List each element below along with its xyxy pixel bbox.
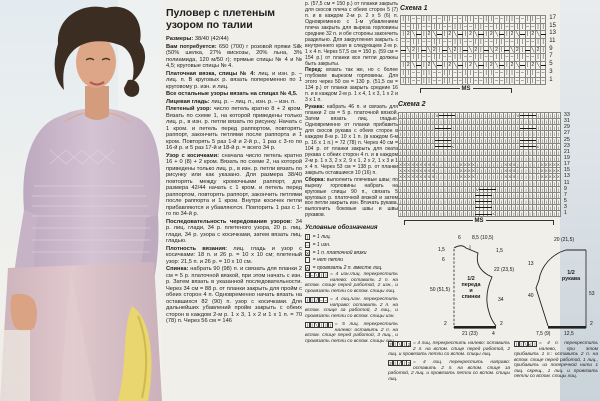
measurement-label: 2 [500, 322, 503, 327]
chart2-title: Схема 2 [398, 101, 426, 108]
paragraph-needles-note: Все остальные узоры вязать на спицах № 4… [166, 91, 302, 98]
cable-increase-symbol-icon: ||╲≤| [514, 341, 537, 347]
measurement-label: 22 (23,5) [494, 268, 514, 273]
measurement-label: 8,5 (10,5) [472, 236, 493, 241]
ms-repeat-label: MS [462, 86, 471, 92]
legend-item-knit: |= 1 лиц. [305, 234, 398, 240]
legend-title: Условные обозначения [305, 224, 398, 231]
garter-symbol-icon: X [305, 250, 310, 256]
schematic-sleeve: 20 (21,5) 13 40 53 2 7,5 (9) 12,5 1/2 ру… [528, 236, 598, 338]
no-stitch-symbol-icon [305, 257, 310, 263]
measurement-label: 1,5 [438, 248, 445, 253]
paragraph-garter: Платочная вязка, спицы № 4: лиц. и изн. … [166, 71, 302, 91]
bottom-legend-right: ||╲≤|= 4 п. перекрестить налево, при это… [514, 341, 598, 382]
chart1-repeat-bracket: MS [420, 88, 512, 93]
paragraph-cable-pattern: Узор с косичками: сначала число петель к… [166, 153, 302, 218]
measurement-label: 1,5 [496, 249, 503, 254]
cable4-right-symbol-icon: 2|╱|2 [388, 360, 411, 366]
page-title: Пуловер с плетеным узором по талии [166, 8, 302, 31]
bottom-legend-left: 2|╲|2= 4 лиц. перекрестить налево: остав… [388, 341, 510, 385]
paragraph-assembly: Сборка: выполнить плечевые швы; по вырез… [305, 178, 398, 220]
measurement-label: 2 [590, 322, 593, 327]
paragraph-back: Спинка: набрать 90 (98) п. и связать для… [166, 266, 302, 325]
knit-symbol-icon: | [305, 234, 310, 240]
legend-item-cable4-right: 2|╱|2= 4 лиц. перекрестить направо: оста… [388, 360, 510, 382]
legend-item-k2tog: Λ= провязать 2 п. вместе лиц. [305, 265, 398, 271]
legend-item-cable-inc: ||╲≤|= 4 п. перекрестить налево, при это… [514, 341, 598, 380]
paragraph-sequence: Последовательность чередования узоров: 3… [166, 219, 302, 245]
paragraph-gauge: Плотность вязания: лиц. гладь и узор с к… [166, 246, 302, 266]
pattern-text-column-2: р. (57,5 см = 150 р.) от планки закрыть … [305, 2, 398, 347]
measurement-label: 20 (21,5) [554, 238, 574, 243]
chart2-grid: |||||||||V|||||||||||||||V||||||||||||||… [398, 112, 561, 217]
cable5-left-symbol-icon: ||╲||| [305, 322, 333, 328]
measurement-label: 7,5 (9) [536, 332, 550, 337]
measurement-label: 13 [528, 262, 534, 267]
legend-item-purl: –= 1 изн. [305, 242, 398, 248]
measurement-label: 21 (23) [462, 332, 478, 337]
cable4-left-symbol-icon: 2|╲|2 [388, 341, 411, 347]
piece-name: 1/2 переда и спинки [458, 276, 484, 300]
measurement-label: 6 [458, 236, 461, 241]
legend-item-garter: X= 1 п. платочной вязки [305, 250, 398, 256]
legend-item-nostitch: = нет петли [305, 257, 398, 263]
symbol-legend: Условные обозначения |= 1 лиц. –= 1 изн.… [305, 224, 398, 344]
legend-item-cable-right-purl: ||╱––= 4 лиц./изн. перекрестить направо:… [305, 297, 398, 319]
chart1-row-numbers: 1715131197531 [549, 15, 556, 84]
measurement-label: 6 [442, 258, 445, 263]
legend-item-cable4-left: 2|╲|2= 4 лиц. перекрестить налево: остав… [388, 341, 510, 358]
measurement-label: 50 (51,5) [430, 288, 450, 293]
chart1-title: Схема 1 [400, 5, 428, 12]
measurement-label: 34 [498, 298, 504, 303]
paragraph-back-cont: р. (57,5 см = 150 р.) от планки закрыть … [305, 2, 398, 67]
k2tog-symbol-icon: Λ [305, 265, 310, 271]
paragraph-front: Перед: вязать так же, но с более глубоки… [305, 68, 398, 104]
measurement-label: 40 [528, 294, 534, 299]
model-photo [0, 0, 162, 401]
measurement-label: 53 [589, 292, 595, 297]
measurement-label: 12,5 [564, 332, 574, 337]
measurement-label: 2 [444, 322, 447, 327]
chart2-row-numbers: 33312927252321191715131197531 [564, 112, 570, 216]
pattern-text-column-1: Пуловер с плетеным узором по талии Разме… [166, 8, 302, 326]
cable-left-symbol-icon: ––╲|| [305, 272, 328, 278]
ms-repeat-label: MS [475, 218, 484, 224]
paragraph-stockinette: Лицевая гладь: лиц. р. – лиц. п., изн. р… [166, 99, 302, 106]
schematic-front-back: 6 8,5 (10,5) 1,5 6 50 (51,5) 2 1,5 22 (2… [430, 236, 526, 338]
paragraph-sizes: Размеры: 38/40 (42/44) [166, 36, 302, 43]
paragraph-sleeves: Рукава: набрать 46 п. и связать для план… [305, 105, 398, 176]
chart-schema-1: ||––||––||––||––||––||––||––––||––||––||… [400, 15, 556, 85]
legend-item-cable5-left: ||╲|||= 5 лиц. перекрестить налево: оста… [305, 322, 398, 344]
purl-symbol-icon: – [305, 242, 310, 248]
paragraph-woven-pattern: Плетеный узор: число петель кратно 8 + 2… [166, 106, 302, 152]
legend-item-cable-left-purl: ––╲||= 4 изн./лиц. перекрестить налево: … [305, 272, 398, 294]
paragraph-materials: Вам потребуется: 650 (700) г розовой пря… [166, 44, 302, 70]
chart1-grid: ||––||––||––||––||––||––||––––||––||––||… [400, 15, 546, 85]
chart-schema-2: |||||||||V|||||||||||||||V||||||||||||||… [398, 112, 570, 217]
chart2-repeat-bracket: MS [404, 220, 554, 225]
piece-name: 1/2 рукава [558, 270, 584, 282]
measurement-label: 4 [492, 332, 495, 337]
cable-right-symbol-icon: ||╱–– [305, 297, 328, 303]
magazine-page: Пуловер с плетеным узором по талии Разме… [0, 0, 600, 401]
